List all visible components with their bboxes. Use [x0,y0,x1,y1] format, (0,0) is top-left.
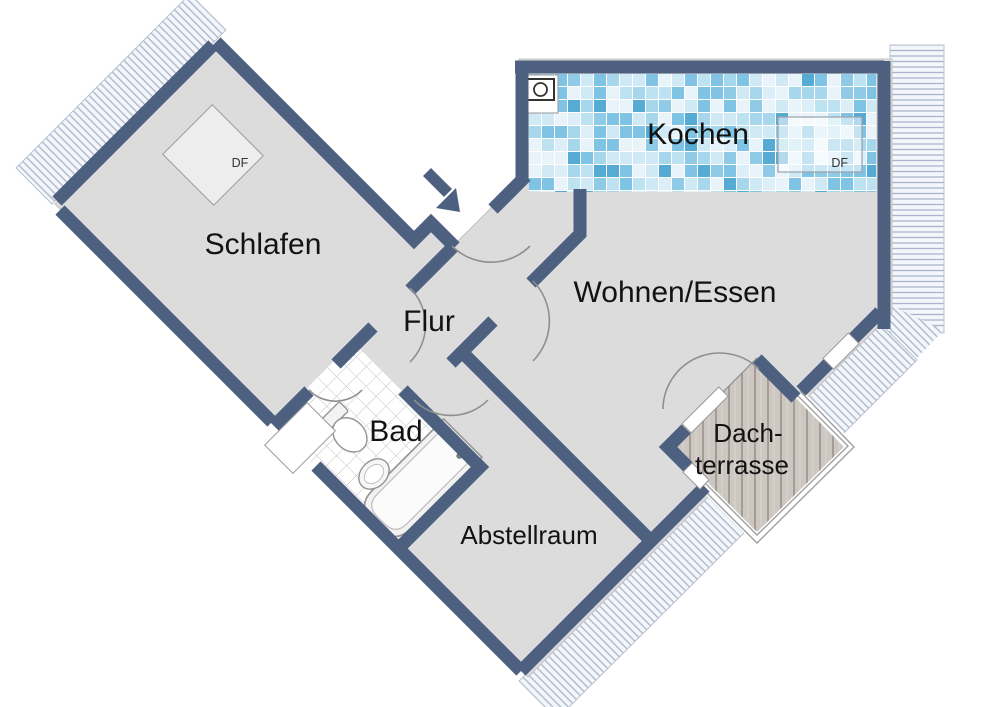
label-flur: Flur [403,305,455,338]
label-abstellraum: Abstellraum [460,520,597,550]
label-wohnen: Wohnen/Essen [574,276,777,309]
label-terrasse-line2: terrasse [695,450,789,480]
label-terrasse-line1: Dach- [713,418,782,448]
label-df-schlafen: DF [232,156,249,170]
label-bad: Bad [369,415,422,448]
floorplan-page: Schlafen Kochen Wohnen/Essen Flur Bad Ab… [0,0,1000,707]
label-schlafen: Schlafen [205,228,322,261]
entrance-arrow-icon [423,168,460,212]
label-kochen: Kochen [647,118,749,151]
roof-hatch-right [890,45,944,333]
label-df-kochen: DF [831,156,848,170]
roof-window-kitchen [778,117,862,172]
floorplan-canvas: Schlafen Kochen Wohnen/Essen Flur Bad Ab… [0,0,1000,707]
